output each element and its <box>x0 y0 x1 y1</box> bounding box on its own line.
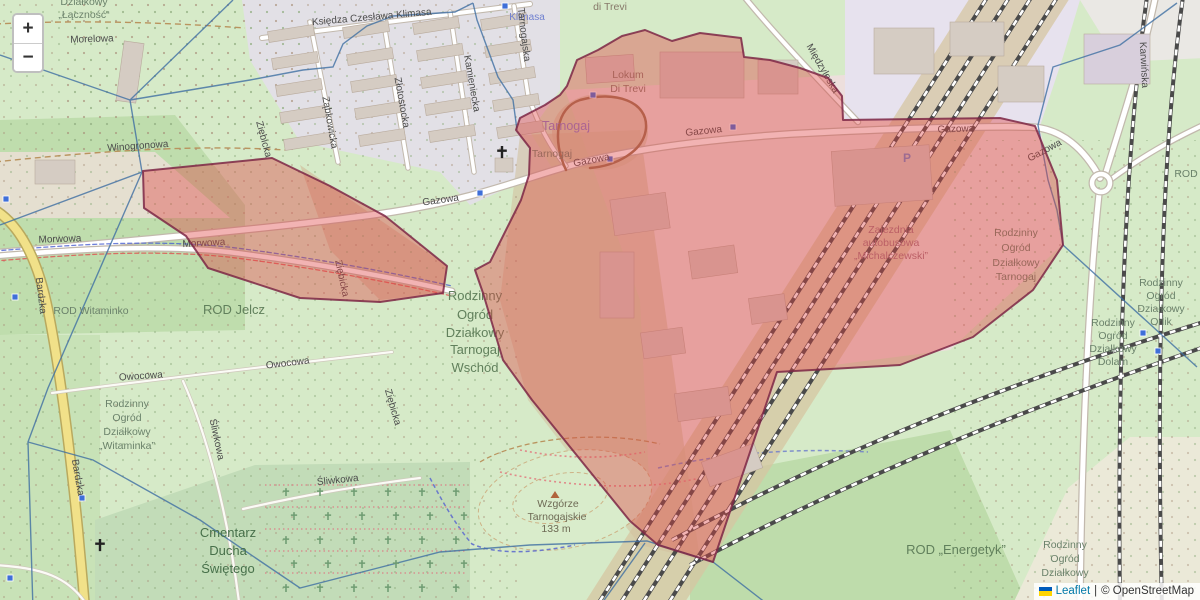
map-label: Tarnogaj <box>450 342 500 357</box>
map-label: Dolam <box>1098 356 1129 368</box>
bus-stop-icon <box>79 495 85 501</box>
map-label: „Witaminka” <box>99 440 156 452</box>
osm-attribution: © OpenStreetMap <box>1101 585 1194 597</box>
map-label: Orlik <box>1150 316 1172 328</box>
zoom-out-button[interactable]: − <box>14 43 42 71</box>
map-label: Działkowy <box>1089 343 1137 355</box>
bus-stop-icon <box>477 190 483 196</box>
map-label: ROD <box>1174 168 1198 180</box>
map-label: Rodzinny <box>1139 277 1184 289</box>
attribution-bar: Leaflet | © OpenStreetMap <box>1034 583 1200 600</box>
zoom-control: + − <box>12 13 44 73</box>
map-label: Ogród <box>1146 290 1175 302</box>
leaflet-attribution-link[interactable]: Leaflet <box>1056 585 1091 597</box>
zoom-in-button[interactable]: + <box>14 15 42 43</box>
map-label: Działkowy <box>103 426 151 438</box>
bus-stop-icon <box>12 294 18 300</box>
map-label: di Trevi <box>593 1 627 13</box>
map-label: ROD Jelcz <box>203 302 265 317</box>
ukraine-flag-icon <box>1039 587 1052 596</box>
map-label: Rodzinny <box>1091 317 1136 329</box>
map-label: Działkowy <box>60 0 108 8</box>
map-label: ROD „Energetyk” <box>906 542 1006 557</box>
map-label: Morelowa <box>70 33 114 46</box>
map-label: Wzgórze <box>537 498 579 510</box>
map-label: ROD Witaminko <box>53 305 128 317</box>
bus-stop-icon <box>502 3 508 9</box>
map-label: 133 m <box>541 523 570 535</box>
map-label: Działkowy <box>1041 567 1089 579</box>
map-label: Działkowy <box>1137 303 1185 315</box>
map-label: Rodzinny <box>1043 539 1088 551</box>
map-label: Świętego <box>201 561 254 576</box>
bus-stop-icon <box>1140 330 1146 336</box>
bus-stop-icon <box>7 575 13 581</box>
bus-stop-icon <box>1155 348 1161 354</box>
map-label: Ogród <box>1098 330 1127 342</box>
map-label: Rodzinny <box>105 398 150 410</box>
map-canvas[interactable]: P Działkowy„Łączność“MorelowaWinogronowa… <box>0 0 1200 600</box>
map-label: Tarnogajskie <box>528 511 587 523</box>
bus-stop-icon <box>3 196 9 202</box>
map-label: „Łączność“ <box>58 9 110 21</box>
map-label: Ducha <box>209 543 247 558</box>
map-label: Cmentarz <box>200 525 256 540</box>
leaflet-map[interactable]: P Działkowy„Łączność“MorelowaWinogronowa… <box>0 0 1200 600</box>
map-label: Wschód <box>452 360 499 375</box>
map-label: Morwowa <box>38 233 82 246</box>
map-label: Ogród <box>112 412 141 424</box>
attribution-separator: | <box>1094 585 1097 597</box>
map-label: Ogród <box>1050 553 1079 565</box>
